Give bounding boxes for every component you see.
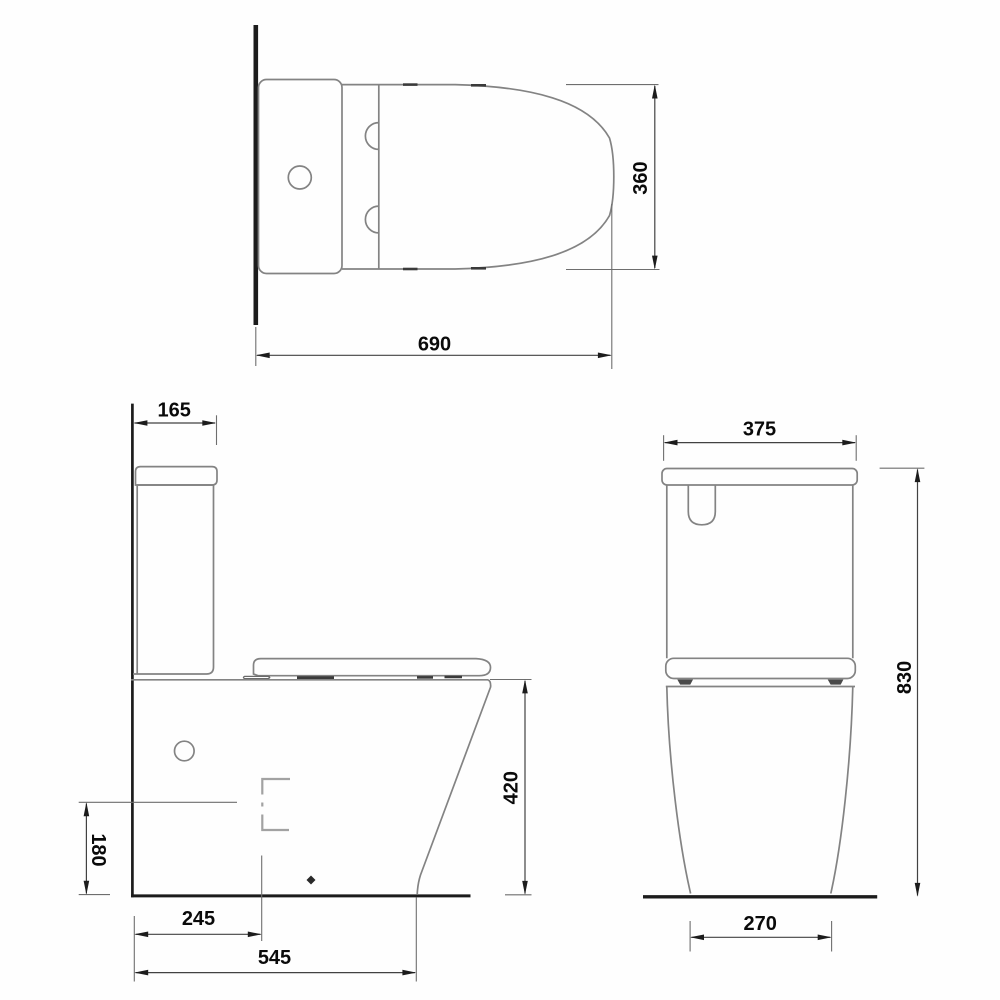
- svg-text:830: 830: [894, 661, 916, 694]
- svg-text:360: 360: [630, 161, 652, 194]
- svg-text:690: 690: [418, 334, 451, 356]
- svg-text:245: 245: [182, 908, 215, 930]
- svg-text:165: 165: [158, 400, 191, 422]
- svg-text:180: 180: [87, 833, 109, 866]
- svg-text:270: 270: [744, 913, 777, 935]
- svg-text:420: 420: [500, 771, 522, 804]
- svg-text:545: 545: [258, 947, 291, 969]
- svg-text:375: 375: [743, 419, 776, 441]
